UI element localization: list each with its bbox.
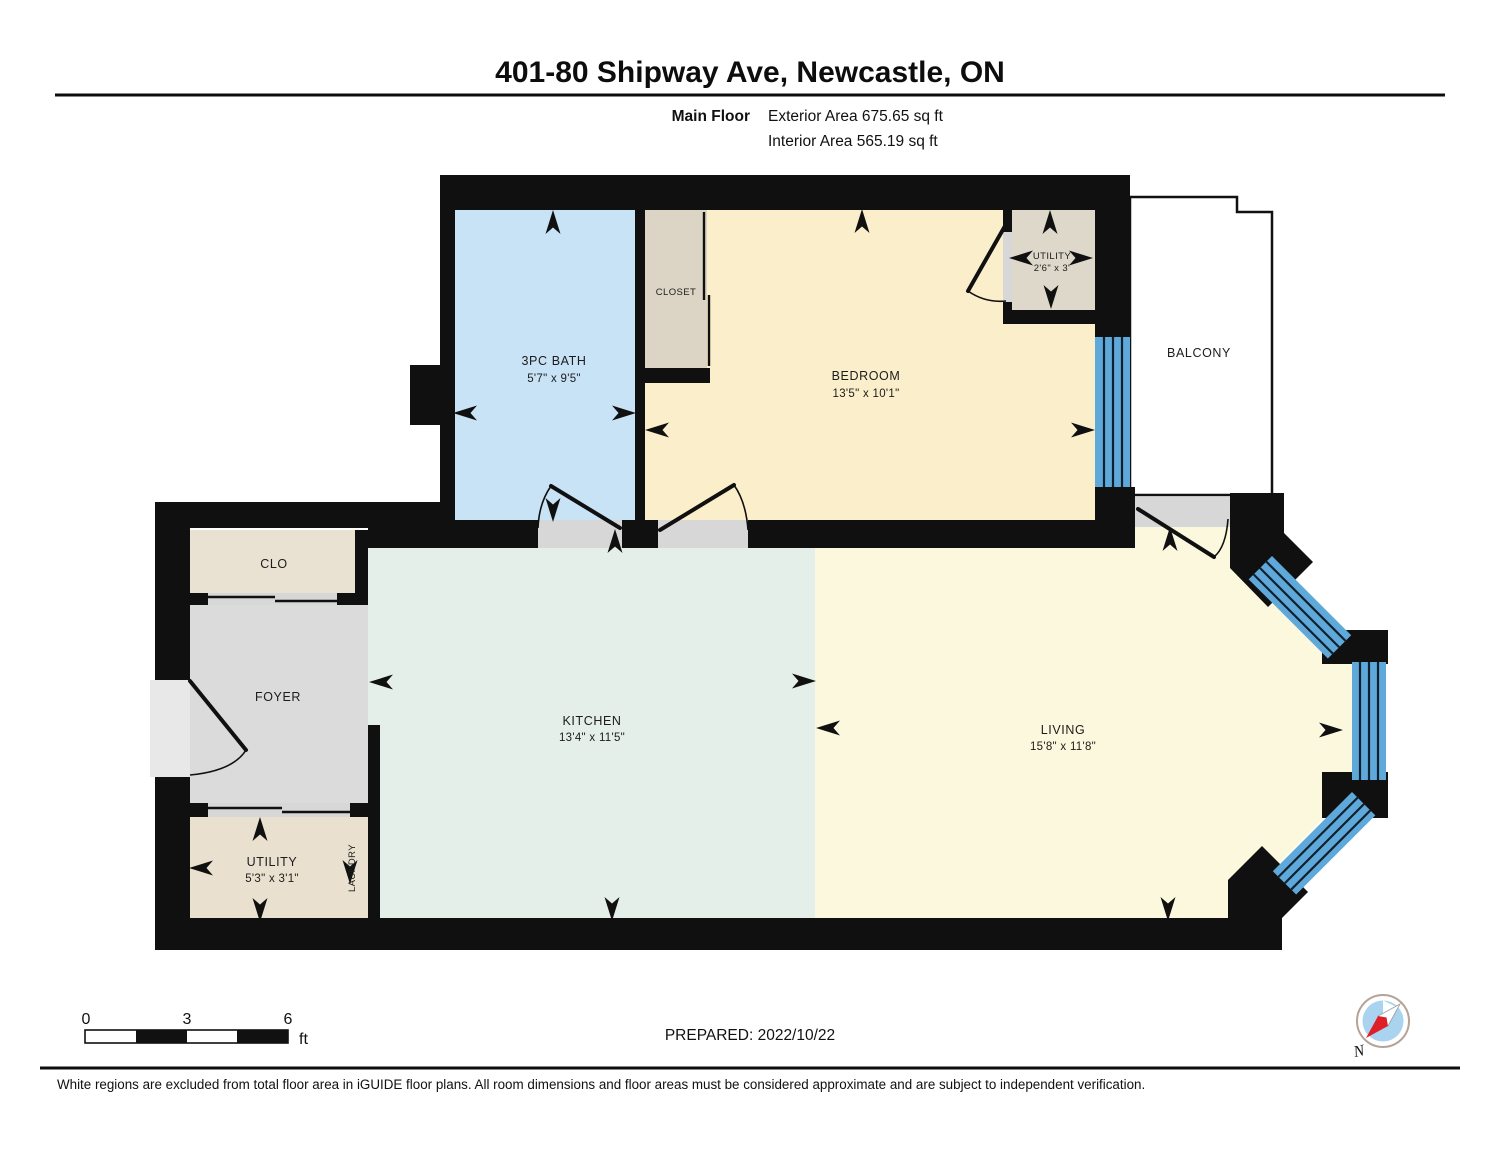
page-title: 401-80 Shipway Ave, Newcastle, ON: [495, 56, 1005, 89]
bay-window-middle: [1352, 662, 1386, 780]
floor-plan-canvas: 401-80 Shipway Ave, Newcastle, ON Main F…: [0, 0, 1500, 1159]
bedroom-label: BEDROOM: [832, 369, 901, 383]
floor-plan-page: 401-80 Shipway Ave, Newcastle, ON Main F…: [0, 0, 1500, 1159]
prepared-date: PREPARED: 2022/10/22: [665, 1027, 835, 1044]
kitchen-label: KITCHEN: [562, 714, 621, 728]
scale-mid: 3: [183, 1011, 192, 1028]
entry-landing-area: [150, 680, 190, 777]
scale-end: 6: [284, 1011, 293, 1028]
compass-north-label: N: [1351, 1042, 1367, 1061]
bath-dims: 5'7" x 9'5": [527, 373, 581, 385]
interior-area: Interior Area 565.19 sq ft: [768, 133, 938, 150]
exterior-area: Exterior Area 675.65 sq ft: [768, 108, 944, 125]
kitchen-area: [368, 544, 815, 918]
compass-icon: N: [1351, 995, 1409, 1061]
foyer-area: [190, 605, 368, 803]
clo-label: CLO: [260, 557, 288, 571]
bath-label: 3PC BATH: [522, 354, 587, 368]
closet-label: CLOSET: [656, 287, 696, 298]
living-label: LIVING: [1041, 723, 1086, 737]
bath-threshold: [538, 520, 622, 548]
bath-area: [455, 210, 635, 528]
bedroom-dims: 13'5" x 10'1": [833, 388, 900, 400]
balcony-threshold: [1135, 497, 1230, 527]
floor-label: Main Floor: [672, 108, 750, 125]
utility-top-threshold: [1003, 232, 1012, 302]
utility-top-label: UTILITY: [1033, 251, 1071, 262]
header: 401-80 Shipway Ave, Newcastle, ON Main F…: [55, 56, 1445, 150]
disclaimer-text: White regions are excluded from total fl…: [57, 1077, 1145, 1092]
utility-door-gap: [208, 803, 350, 817]
kitchen-dims: 13'4" x 11'5": [559, 732, 625, 744]
utility-bottom-dims: 5'3" x 3'1": [245, 873, 299, 885]
bedroom-balcony-window: [1095, 337, 1130, 487]
scale-unit: ft: [299, 1031, 308, 1048]
living-dims: 15'8" x 11'8": [1030, 741, 1096, 753]
utility-bottom-label: UTILITY: [247, 855, 298, 869]
scale-start: 0: [82, 1011, 91, 1028]
laundry-label: LAUNDRY: [347, 844, 358, 892]
balcony-label: BALCONY: [1167, 346, 1231, 360]
utility-top-dims: 2'6" x 3': [1034, 263, 1070, 274]
clo-door-gap: [208, 593, 337, 605]
scale-bar: 0 3 6 ft: [82, 1011, 309, 1048]
foyer-label: FOYER: [255, 690, 301, 704]
